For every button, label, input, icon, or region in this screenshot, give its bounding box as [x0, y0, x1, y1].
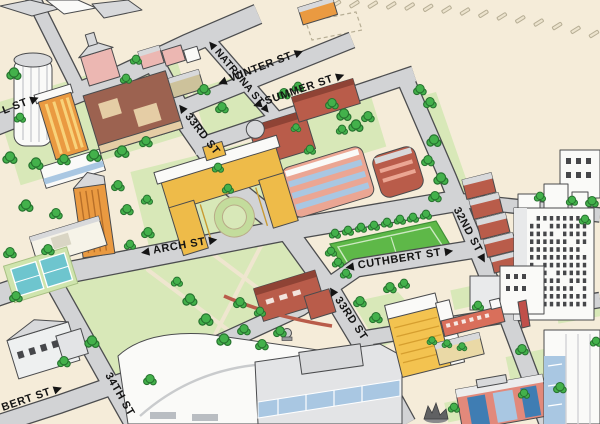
campus-map: L ST ▶ ◀ WINTER ST ▶ ◀ NATRONA ST ▶ ◀ SU… — [0, 0, 600, 424]
